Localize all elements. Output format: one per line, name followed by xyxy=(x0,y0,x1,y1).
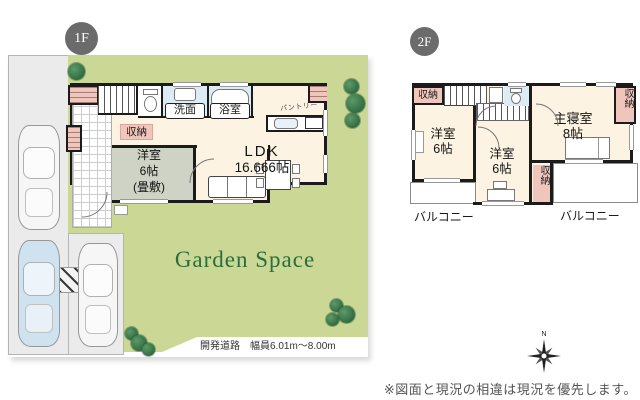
master-bedroom-label: 主寝室 8帖 xyxy=(535,111,611,141)
hall-closet xyxy=(66,125,82,152)
compass-north-label: N xyxy=(527,331,561,338)
kitchen-sink-icon xyxy=(274,118,298,129)
disclaimer-text: ※図面と現況の相違は現況を優先します。 xyxy=(355,379,637,398)
west-b-size: 6帖 xyxy=(472,162,532,177)
closet-mid: 収納 xyxy=(533,165,550,202)
road-note: 開発道路 幅員6.01m〜8.00m xyxy=(200,337,366,352)
window xyxy=(508,82,526,87)
stairs-1f xyxy=(98,86,138,115)
chair xyxy=(292,178,300,188)
floor-plan-canvas: 1F 2F xyxy=(0,0,640,400)
wall-segment xyxy=(550,163,553,205)
wall-segment xyxy=(529,83,532,205)
balcony-right xyxy=(553,163,638,203)
chair xyxy=(256,178,264,188)
garden-space-title: Garden Space xyxy=(125,245,365,275)
closet-top-left: 収納 xyxy=(412,86,444,105)
compass-rose-icon xyxy=(527,339,561,373)
tree-icon xyxy=(68,63,85,80)
west-room-a-label: 洋室 6帖 xyxy=(413,127,473,157)
tree-icon xyxy=(346,94,365,113)
tatami-name: 洋室 xyxy=(107,147,191,163)
balcony-right-label: バルコニー xyxy=(560,207,640,224)
window xyxy=(596,82,616,87)
car-top xyxy=(18,125,60,230)
entrance-tiles xyxy=(72,103,112,228)
tree-icon xyxy=(345,113,360,128)
west-a-size: 6帖 xyxy=(413,142,473,157)
window xyxy=(629,125,634,150)
desk-icon xyxy=(487,189,515,201)
shoe-closet xyxy=(68,85,99,105)
tatami-size: 6帖 xyxy=(107,163,191,179)
west-a-name: 洋室 xyxy=(413,127,473,142)
car-blue xyxy=(18,240,60,347)
floor1-badge: 1F xyxy=(65,22,98,55)
balcony-left xyxy=(410,182,476,204)
car-bottom-right xyxy=(78,243,118,347)
toilet-bowl-icon xyxy=(144,96,157,112)
ldk-name: LDK xyxy=(206,143,318,160)
window xyxy=(213,199,253,204)
window xyxy=(173,82,201,87)
window xyxy=(482,201,524,206)
ldk-size: 16.666帖 xyxy=(206,160,318,176)
window xyxy=(424,178,460,183)
washroom-label: 洗面 xyxy=(165,103,205,119)
tree-icon xyxy=(142,343,155,356)
closet-right: 収納 xyxy=(614,86,636,124)
toilet-tank-icon xyxy=(143,89,158,95)
tatami-room-label: 洋室 6帖 (畳敷) xyxy=(107,147,191,195)
chair xyxy=(493,181,507,189)
toilet-bowl-icon xyxy=(511,93,521,104)
closet-label-1f: 収納 xyxy=(120,124,153,140)
window xyxy=(560,82,586,87)
window xyxy=(323,110,328,136)
west-room-b-label: 洋室 6帖 xyxy=(472,147,532,177)
ldk-label: LDK 16.666帖 xyxy=(206,143,318,176)
window xyxy=(323,155,328,173)
washbasin-icon-2f xyxy=(489,87,503,103)
window xyxy=(565,159,603,164)
floor2-badge: 2F xyxy=(410,27,439,56)
site-plan-1f: 洗面 浴室 収納 パントリー LDK 16.666帖 洋室 6帖 (畳敷) Ga… xyxy=(8,55,368,357)
tree-icon xyxy=(344,79,359,94)
stove-icon xyxy=(305,117,323,129)
washbasin-icon xyxy=(174,88,196,101)
master-name: 主寝室 xyxy=(535,111,611,126)
west-b-name: 洋室 xyxy=(472,147,532,162)
bathroom-label: 浴室 xyxy=(210,103,250,119)
tree-icon xyxy=(338,306,355,323)
window xyxy=(220,82,248,87)
balcony-left-label: バルコニー xyxy=(414,208,494,225)
tree-icon xyxy=(326,313,339,326)
entrance-step xyxy=(114,205,128,215)
master-size: 8帖 xyxy=(535,126,611,141)
window xyxy=(120,199,168,204)
tatami-note: (畳敷) xyxy=(107,179,191,195)
